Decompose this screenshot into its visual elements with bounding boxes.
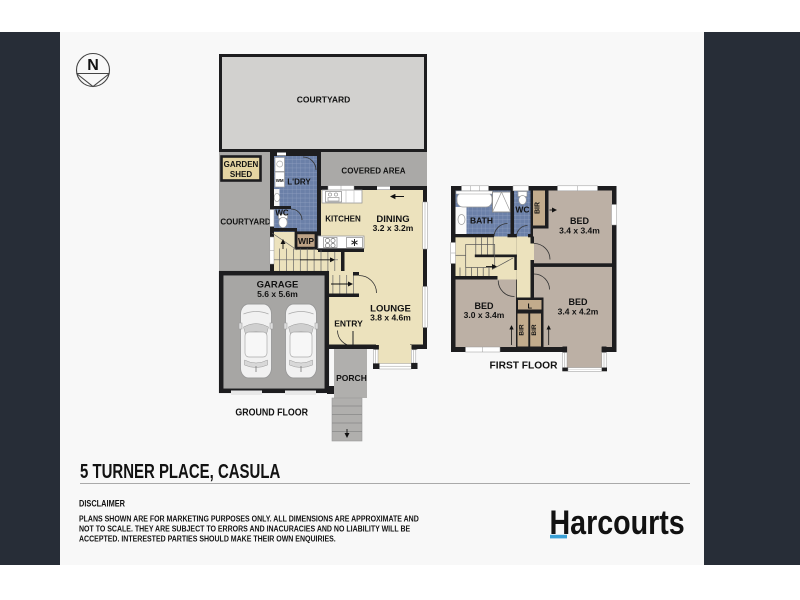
svg-text:ACCEPTED. INTERESTED PARTIES S: ACCEPTED. INTERESTED PARTIES SHOULD MAKE…	[79, 534, 336, 544]
svg-text:3.0 x 3.4m: 3.0 x 3.4m	[464, 310, 505, 320]
svg-text:GARDEN: GARDEN	[224, 160, 259, 169]
svg-text:WC: WC	[515, 205, 529, 215]
svg-text:DISCLAIMER: DISCLAIMER	[79, 498, 125, 509]
svg-text:BATH: BATH	[470, 215, 493, 225]
svg-text:ENTRY: ENTRY	[334, 319, 363, 329]
svg-text:Harcourts: Harcourts	[550, 502, 685, 541]
svg-text:L'DRY: L'DRY	[287, 178, 311, 187]
svg-text:KITCHEN: KITCHEN	[325, 215, 361, 224]
svg-text:BIR: BIR	[518, 324, 525, 336]
svg-text:BED: BED	[568, 297, 588, 307]
svg-text:5.6 x 5.6m: 5.6 x 5.6m	[257, 289, 298, 299]
svg-text:5 TURNER PLACE, CASULA: 5 TURNER PLACE, CASULA	[80, 460, 280, 483]
svg-text:COURTYARD: COURTYARD	[220, 218, 271, 227]
svg-text:WC: WC	[275, 209, 289, 218]
svg-text:COURTYARD: COURTYARD	[297, 95, 351, 105]
svg-text:SHED: SHED	[230, 170, 252, 179]
svg-text:PLANS SHOWN ARE FOR MARKETING: PLANS SHOWN ARE FOR MARKETING PURPOSES O…	[79, 514, 419, 524]
svg-text:BED: BED	[570, 216, 590, 226]
svg-text:NOT TO SCALE. THEY ARE SUBJECT: NOT TO SCALE. THEY ARE SUBJECT TO ERRORS…	[79, 524, 410, 534]
svg-text:WM: WM	[276, 178, 284, 183]
svg-text:GROUND FLOOR: GROUND FLOOR	[235, 407, 308, 419]
svg-text:COVERED AREA: COVERED AREA	[341, 167, 405, 176]
svg-text:3.4 x 4.2m: 3.4 x 4.2m	[558, 307, 599, 317]
svg-text:BIR: BIR	[535, 202, 542, 214]
svg-text:BIR: BIR	[531, 324, 538, 336]
svg-text:3.4 x 3.4m: 3.4 x 3.4m	[559, 226, 600, 236]
svg-text:L: L	[528, 302, 533, 311]
svg-text:WIP: WIP	[298, 236, 314, 246]
svg-text:3.2 x 3.2m: 3.2 x 3.2m	[373, 223, 414, 233]
svg-text:FIRST FLOOR: FIRST FLOOR	[490, 360, 559, 371]
svg-text:PORCH: PORCH	[336, 373, 367, 383]
svg-text:N: N	[87, 57, 99, 74]
svg-text:3.8 x 4.6m: 3.8 x 4.6m	[370, 313, 411, 323]
